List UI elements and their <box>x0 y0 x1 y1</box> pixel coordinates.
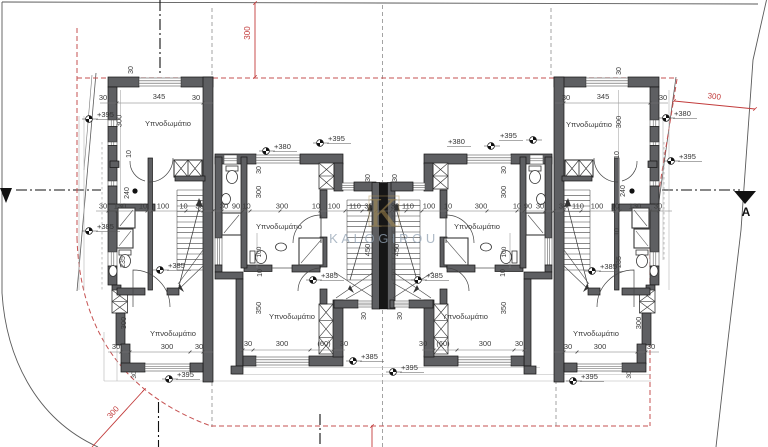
svg-text:+395: +395 <box>328 134 345 143</box>
svg-text:30: 30 <box>562 93 570 102</box>
svg-text:30: 30 <box>244 339 252 348</box>
svg-text:10: 10 <box>126 150 133 158</box>
svg-text:130: 130 <box>629 202 642 211</box>
svg-text:30: 30 <box>99 93 107 102</box>
svg-text:345: 345 <box>597 92 610 101</box>
svg-text:10: 10 <box>444 202 452 211</box>
svg-text:+380: +380 <box>674 109 691 118</box>
svg-text:+395: +395 <box>500 131 517 140</box>
svg-text:30: 30 <box>419 339 427 348</box>
svg-text:10: 10 <box>500 269 507 277</box>
svg-text:300: 300 <box>479 339 492 348</box>
svg-text:30: 30 <box>564 342 572 351</box>
svg-text:300: 300 <box>276 202 289 211</box>
svg-text:100: 100 <box>501 246 508 257</box>
svg-text:300: 300 <box>276 339 289 348</box>
svg-text:30: 30 <box>192 93 200 102</box>
svg-text:Υπνοδωμάτιο: Υπνοδωμάτιο <box>442 312 488 321</box>
svg-text:90: 90 <box>524 202 532 211</box>
svg-text:+395: +395 <box>679 152 696 161</box>
svg-text:30: 30 <box>647 342 655 351</box>
svg-text:30: 30 <box>365 174 372 182</box>
svg-text:KALOGIROU: KALOGIROU <box>329 231 439 246</box>
svg-text:30: 30 <box>616 67 623 75</box>
svg-text:300: 300 <box>634 317 643 330</box>
svg-text:+380: +380 <box>448 137 465 146</box>
svg-text:30: 30 <box>659 93 667 102</box>
svg-text:Υπνοδωμάτιο: Υπνοδωμάτιο <box>566 120 612 129</box>
svg-text:Υπνοδωμάτιο: Υπνοδωμάτιο <box>454 222 500 231</box>
svg-text:+385: +385 <box>361 352 378 361</box>
svg-text:30: 30 <box>501 166 508 174</box>
svg-text:110: 110 <box>572 202 584 211</box>
svg-text:30: 30 <box>654 202 662 211</box>
svg-text:100: 100 <box>256 246 263 257</box>
svg-text:350: 350 <box>254 302 263 315</box>
svg-text:10: 10 <box>242 202 250 211</box>
svg-text:240: 240 <box>124 187 131 199</box>
svg-text:Υπνοδωμάτιο: Υπνοδωμάτιο <box>150 329 196 338</box>
svg-text:10: 10 <box>312 202 320 211</box>
svg-text:+395: +395 <box>97 110 114 119</box>
svg-text:30: 30 <box>131 371 138 379</box>
svg-text:300: 300 <box>119 317 128 330</box>
svg-text:+395: +395 <box>581 372 598 381</box>
svg-text:+385: +385 <box>600 262 617 271</box>
svg-text:300: 300 <box>475 202 488 211</box>
svg-text:Υπνοδωμάτιο: Υπνοδωμάτιο <box>256 222 302 231</box>
svg-text:100: 100 <box>157 202 170 211</box>
svg-text:30: 30 <box>112 342 120 351</box>
svg-text:350: 350 <box>499 302 508 315</box>
svg-text:30: 30 <box>626 371 633 379</box>
svg-text:+395: +395 <box>177 370 194 379</box>
svg-text:30: 30 <box>515 339 523 348</box>
svg-text:300: 300 <box>254 186 263 199</box>
svg-text:(60): (60) <box>436 339 450 348</box>
svg-text:10: 10 <box>614 228 621 236</box>
svg-text:10: 10 <box>611 202 619 211</box>
svg-text:Υπνοδωμάτιο: Υπνοδωμάτιο <box>269 312 315 321</box>
svg-text:100: 100 <box>591 202 604 211</box>
svg-text:(60): (60) <box>317 339 331 348</box>
svg-text:A: A <box>742 205 751 219</box>
svg-text:+385: +385 <box>321 271 338 280</box>
svg-text:30: 30 <box>128 66 135 74</box>
svg-text:130: 130 <box>114 202 127 211</box>
svg-text:+380: +380 <box>274 142 291 151</box>
svg-text:30: 30 <box>256 166 263 174</box>
svg-text:300: 300 <box>594 342 607 351</box>
svg-text:10: 10 <box>257 269 264 277</box>
svg-text:300: 300 <box>115 115 124 128</box>
svg-text:+385: +385 <box>97 222 114 231</box>
svg-text:100: 100 <box>328 202 341 211</box>
svg-text:30: 30 <box>536 202 544 211</box>
svg-text:110: 110 <box>349 202 361 211</box>
svg-text:30: 30 <box>220 202 228 211</box>
svg-text:10: 10 <box>139 202 147 211</box>
svg-text:30: 30 <box>195 342 203 351</box>
svg-text:300: 300 <box>161 342 174 351</box>
svg-text:30: 30 <box>340 339 348 348</box>
svg-text:300: 300 <box>499 186 508 199</box>
svg-text:30: 30 <box>99 202 107 211</box>
svg-text:30: 30 <box>559 202 567 211</box>
svg-text:Υπνοδωμάτιο: Υπνοδωμάτιο <box>145 119 191 128</box>
svg-text:235: 235 <box>120 256 127 268</box>
svg-text:Υπνοδωμάτιο: Υπνοδωμάτιο <box>573 329 619 338</box>
svg-text:240: 240 <box>620 185 627 197</box>
svg-text:300: 300 <box>614 116 623 129</box>
svg-text:10: 10 <box>179 202 187 211</box>
svg-text:235: 235 <box>616 256 623 268</box>
svg-text:110: 110 <box>402 202 414 211</box>
svg-text:30: 30 <box>195 202 203 211</box>
svg-text:30: 30 <box>361 312 368 320</box>
svg-text:90: 90 <box>232 202 240 211</box>
svg-text:+385: +385 <box>426 271 443 280</box>
svg-text:30: 30 <box>392 174 399 182</box>
svg-text:10: 10 <box>614 151 621 159</box>
svg-text:10: 10 <box>513 202 521 211</box>
svg-text:300: 300 <box>243 26 252 40</box>
svg-text:30: 30 <box>397 312 404 320</box>
svg-text:+395: +395 <box>401 363 418 372</box>
svg-text:345: 345 <box>153 92 166 101</box>
svg-text:100: 100 <box>423 202 436 211</box>
svg-text:300: 300 <box>707 91 722 101</box>
svg-text:+385: +385 <box>168 261 185 270</box>
